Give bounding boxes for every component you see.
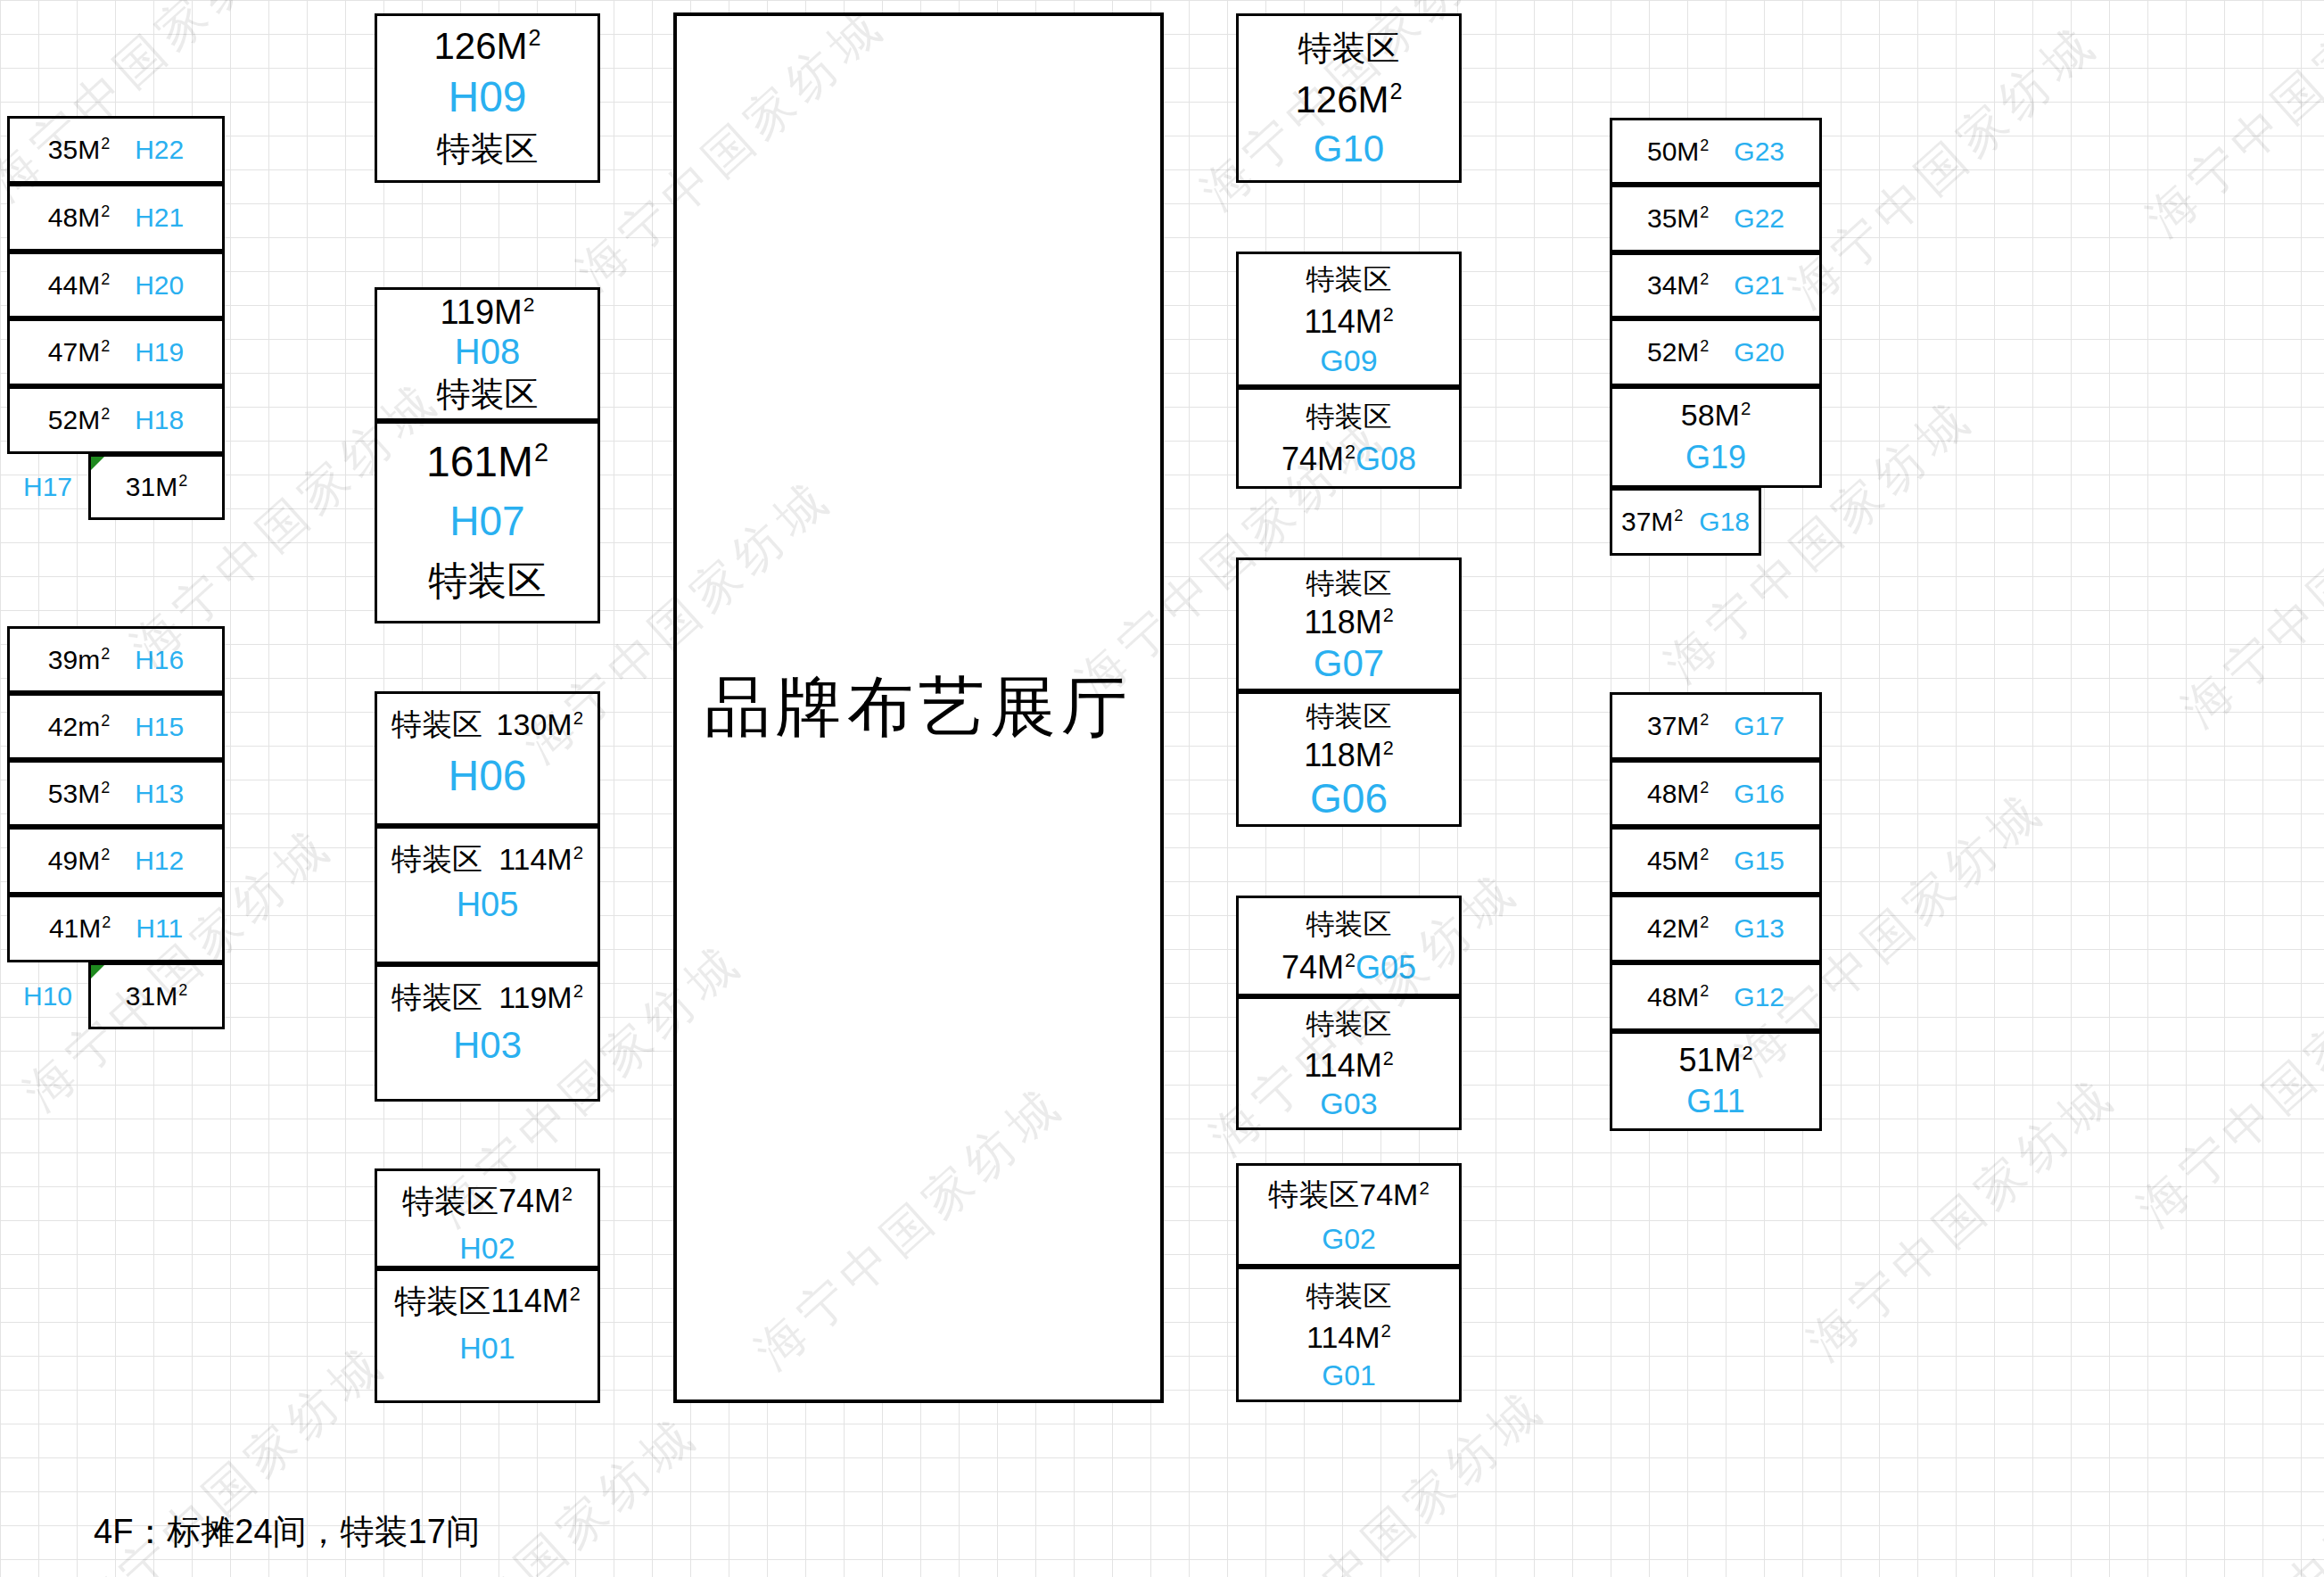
- booth-area: 31M2: [126, 472, 187, 502]
- booth-area: 44M2: [48, 270, 110, 301]
- booth-G09[interactable]: 特装区 114M2 G09: [1236, 252, 1462, 387]
- booth-area: 74M2: [1281, 441, 1356, 478]
- booth-G19[interactable]: 58M2 G19: [1610, 386, 1822, 488]
- booth-zone: 特装区: [1306, 1005, 1392, 1044]
- booth-code: H11: [136, 913, 183, 944]
- booth-H13[interactable]: 53M2 H13: [7, 760, 225, 827]
- booth-code: G21: [1734, 270, 1784, 301]
- booth-G10[interactable]: 特装区 126M2 G10: [1236, 13, 1462, 183]
- booth-code: G05: [1356, 949, 1416, 987]
- watermark-text: 海宁中国家纺城: [1794, 1063, 2130, 1375]
- booth-G23[interactable]: 50M2 G23: [1610, 118, 1822, 185]
- booth-code: H06: [448, 751, 526, 800]
- booth-area: 126M2: [433, 25, 540, 68]
- booth-code: G23: [1734, 136, 1784, 167]
- booth-area: 39m2: [48, 645, 110, 675]
- booth-G05[interactable]: 特装区 74M2 G05: [1236, 896, 1462, 996]
- booth-zone: 特装区: [391, 705, 482, 746]
- booth-G03[interactable]: 特装区 114M2 G03: [1236, 996, 1462, 1130]
- booth-code: G02: [1322, 1223, 1375, 1256]
- booth-area: 42m2: [48, 712, 110, 742]
- booth-zone: 特装区: [1306, 260, 1392, 300]
- booth-area: 130M2: [497, 707, 583, 742]
- booth-code: G06: [1310, 774, 1388, 822]
- booth-area: 126M2: [1295, 78, 1402, 121]
- booth-H17-area-box[interactable]: 31M2: [88, 454, 225, 520]
- booth-G15[interactable]: 45M2 G15: [1610, 827, 1822, 895]
- booth-zone: 特装区: [1306, 565, 1392, 604]
- booth-area: 58M2: [1681, 398, 1751, 433]
- booth-G07[interactable]: 特装区 118M2 G07: [1236, 557, 1462, 691]
- booth-code: H12: [135, 846, 184, 876]
- booth-G13[interactable]: 42M2 G13: [1610, 895, 1822, 962]
- booth-H11[interactable]: 41M2 H11: [7, 895, 225, 962]
- booth-area: 114M2: [499, 842, 583, 877]
- booth-G18[interactable]: 37M2 G18: [1610, 488, 1761, 556]
- booth-code: G18: [1699, 507, 1750, 537]
- booth-area: 118M2: [1304, 737, 1393, 774]
- booth-area: 74M2: [1359, 1177, 1429, 1212]
- booth-area: 119M2: [499, 980, 583, 1015]
- booth-G02[interactable]: 特装区 74M2 G02: [1236, 1163, 1462, 1267]
- booth-H02[interactable]: 特装区 74M2 H02: [375, 1168, 600, 1268]
- booth-area: 52M2: [48, 405, 110, 435]
- corner-marker-icon: [91, 965, 104, 978]
- watermark-text: 海宁中国家纺城: [1224, 1375, 1560, 1577]
- booth-zone: 特装区: [1268, 1175, 1359, 1216]
- booth-code: G09: [1320, 343, 1377, 378]
- booth-area: 50M2: [1647, 136, 1709, 167]
- booth-area: 48M2: [1647, 982, 1709, 1012]
- booth-code: G13: [1734, 913, 1784, 944]
- booth-area: 74M2: [1281, 949, 1356, 987]
- booth-zone: 特装区: [391, 839, 482, 880]
- floor-plan-canvas: 35M2 H22 48M2 H21 44M2 H20 47M2 H19 52M2…: [0, 0, 2324, 1577]
- booth-G21[interactable]: 34M2 G21: [1610, 252, 1822, 318]
- booth-zone: 特装区: [1298, 26, 1400, 71]
- booth-code: H02: [459, 1231, 515, 1266]
- booth-area: 119M2: [441, 293, 535, 332]
- booth-code: H18: [135, 405, 184, 435]
- booth-H08[interactable]: 119M2 H08 特装区: [375, 287, 600, 421]
- watermark-text: 海宁中国家纺城: [2187, 1384, 2324, 1577]
- booth-code: H15: [135, 712, 184, 742]
- booth-zone: 特装区: [1306, 398, 1392, 437]
- corner-marker-icon: [91, 457, 104, 470]
- booth-H21[interactable]: 48M2 H21: [7, 184, 225, 252]
- booth-code: G19: [1685, 439, 1746, 476]
- booth-zone: 特装区: [1306, 905, 1392, 945]
- booth-area: 31M2: [126, 981, 187, 1011]
- booth-code: H21: [135, 202, 184, 233]
- booth-area: 74M2: [499, 1183, 573, 1220]
- booth-area: 37M2: [1647, 711, 1709, 741]
- booth-code: H05: [457, 886, 519, 924]
- booth-G17[interactable]: 37M2 G17: [1610, 692, 1822, 760]
- booth-H19[interactable]: 47M2 H19: [7, 318, 225, 386]
- booth-H22[interactable]: 35M2 H22: [7, 116, 225, 184]
- booth-code: G11: [1686, 1083, 1744, 1120]
- booth-code: G01: [1322, 1359, 1375, 1392]
- booth-code: H08: [455, 332, 520, 372]
- booth-zone: 特装区: [402, 1180, 499, 1224]
- booth-code: G16: [1734, 779, 1784, 809]
- booth-area: 161M2: [426, 437, 548, 486]
- booth-zone: 特装区: [391, 978, 482, 1019]
- booth-code: H13: [135, 779, 184, 809]
- booth-area: 35M2: [1647, 203, 1709, 234]
- booth-area: 51M2: [1678, 1042, 1752, 1079]
- booth-zone: 特装区: [429, 555, 547, 607]
- watermark-text: 海宁中国家纺城: [2124, 929, 2324, 1241]
- booth-area: 48M2: [1647, 779, 1709, 809]
- booth-H15[interactable]: 42m2 H15: [7, 693, 225, 760]
- booth-area: 37M2: [1621, 507, 1683, 537]
- booth-G01[interactable]: 特装区 114M2 G01: [1236, 1267, 1462, 1402]
- booth-zone: 特装区: [437, 372, 539, 417]
- booth-label-H17[interactable]: H17: [7, 454, 88, 520]
- booth-H09[interactable]: 126M2 H09 特装区: [375, 13, 600, 183]
- booth-H12[interactable]: 49M2 H12: [7, 827, 225, 895]
- hall-title: 品牌布艺展厅: [705, 664, 1133, 753]
- booth-H10-area-box[interactable]: 31M2: [88, 962, 225, 1029]
- booth-G08[interactable]: 特装区 74M2 G08: [1236, 387, 1462, 489]
- booth-code: H19: [135, 337, 184, 367]
- booth-zone: 特装区: [1306, 698, 1392, 737]
- booth-area: 114M2: [490, 1283, 580, 1320]
- booth-area: 35M2: [48, 135, 110, 165]
- watermark-text: 海宁中国家纺城: [2133, 0, 2324, 251]
- booth-code: H01: [459, 1331, 515, 1366]
- booth-zone: 特装区: [437, 127, 539, 172]
- booth-code: G10: [1314, 128, 1384, 170]
- booth-code: G15: [1734, 846, 1784, 876]
- booth-code: G12: [1734, 982, 1784, 1012]
- booth-area: 114M2: [1306, 1320, 1391, 1355]
- booth-G12[interactable]: 48M2 G12: [1610, 962, 1822, 1031]
- booth-label-H10[interactable]: H10: [7, 962, 88, 1029]
- booth-area: 53M2: [48, 779, 110, 809]
- booth-G16[interactable]: 48M2 G16: [1610, 760, 1822, 827]
- exhibition-hall: 品牌布艺展厅: [673, 12, 1164, 1403]
- booth-code: H16: [135, 645, 184, 675]
- booth-code: G03: [1320, 1086, 1377, 1121]
- booth-code: G17: [1734, 711, 1784, 741]
- booth-H07[interactable]: 161M2 H07 特装区: [375, 421, 600, 623]
- booth-code: H07: [449, 497, 524, 545]
- booth-code: H22: [135, 135, 184, 165]
- booth-area: 118M2: [1304, 604, 1393, 641]
- booth-H03[interactable]: 特装区 119M2 H03: [375, 964, 600, 1102]
- booth-area: 114M2: [1304, 303, 1393, 341]
- booth-zone: 特装区: [1306, 1277, 1392, 1317]
- booth-code: H03: [453, 1024, 522, 1067]
- booth-code: H20: [135, 270, 184, 301]
- booth-code: G08: [1356, 441, 1416, 478]
- booth-G11[interactable]: 51M2 G11: [1610, 1031, 1822, 1131]
- booth-H18[interactable]: 52M2 H18: [7, 386, 225, 454]
- booth-G20[interactable]: 52M2 G20: [1610, 318, 1822, 386]
- booth-area: 34M2: [1647, 270, 1709, 301]
- booth-area: 49M2: [48, 846, 110, 876]
- booth-code: G07: [1314, 642, 1384, 685]
- booth-H16[interactable]: 39m2 H16: [7, 626, 225, 693]
- booth-H01[interactable]: 特装区 114M2 H01: [375, 1268, 600, 1403]
- booth-area: 48M2: [48, 202, 110, 233]
- booth-code: G22: [1734, 203, 1784, 234]
- booth-H06[interactable]: 特装区 130M2 H06: [375, 691, 600, 826]
- watermark-text: 海宁中国家纺城: [2169, 430, 2324, 741]
- booth-G22[interactable]: 35M2 G22: [1610, 185, 1822, 252]
- booth-G06[interactable]: 特装区 118M2 G06: [1236, 691, 1462, 827]
- booth-area: 47M2: [48, 337, 110, 367]
- booth-area: 41M2: [49, 913, 111, 944]
- booth-code: H09: [448, 72, 526, 121]
- booth-area: 42M2: [1647, 913, 1709, 944]
- watermark-text: 海宁中国家纺城: [1776, 11, 2113, 322]
- booth-H05[interactable]: 特装区 114M2 H05: [375, 826, 600, 964]
- booth-area: 52M2: [1647, 337, 1709, 367]
- booth-H20[interactable]: 44M2 H20: [7, 252, 225, 318]
- booth-area: 45M2: [1647, 846, 1709, 876]
- booth-area: 114M2: [1304, 1047, 1393, 1085]
- booth-code: G20: [1734, 337, 1784, 367]
- floor-note: 4F：标摊24间，特装17间: [94, 1509, 480, 1555]
- booth-zone: 特装区: [394, 1280, 490, 1324]
